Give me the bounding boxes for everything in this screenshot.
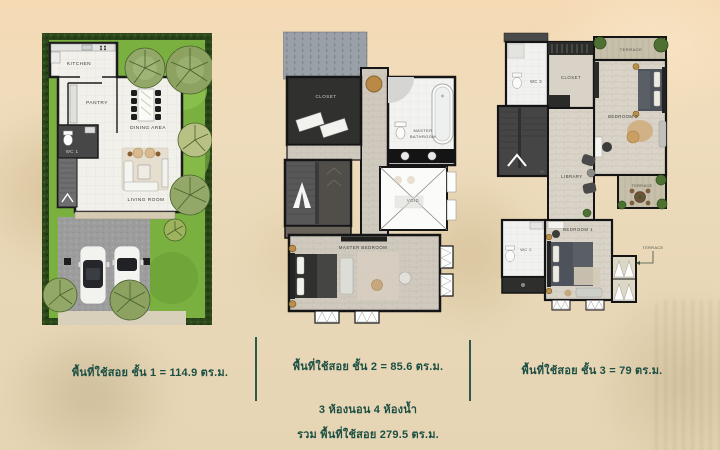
lamp-icon: [289, 301, 296, 308]
terrace-mid-label: TERRACE: [632, 184, 653, 188]
terrace-mid: TERRACE: [618, 175, 667, 209]
plant-icon: [583, 209, 591, 217]
floor3-area-caption: พื้นที่ใช้สอย ชั้น 3 = 79 ตร.ม.: [492, 361, 692, 379]
rug-icon: [574, 267, 600, 285]
desk-icon: [595, 137, 602, 157]
closet-room: CLOSET: [287, 77, 361, 145]
lamp-icon: [289, 245, 296, 252]
bed-icon: [290, 253, 337, 299]
bedroom1-label: BEDROOM 1: [563, 227, 593, 232]
bedroom2-label: BEDROOM 2: [608, 114, 638, 119]
lamp-icon: [546, 234, 552, 240]
terrace-top: TERRACE: [594, 37, 668, 60]
wc2-room: WC 2: [502, 220, 545, 293]
living-label: LIVING ROOM: [128, 197, 165, 203]
rooms-summary-caption: 3 ห้องนอน 4 ห้องน้ำ: [268, 400, 468, 418]
wc2-label: WC 2: [520, 247, 532, 252]
gate-post-icon: [143, 258, 150, 265]
bedroom2: BEDROOM 2: [594, 60, 666, 175]
toilet-icon: [506, 251, 515, 262]
floor2-area-caption: พื้นที่ใช้สอย ชั้น 2 = 85.6 ตร.ม.: [268, 357, 468, 375]
dining-label: DINING AREA: [130, 125, 166, 131]
plant-icon: [618, 201, 626, 209]
french-door-icon: [552, 300, 604, 310]
wc1-room: WC 1: [58, 125, 98, 158]
roof-ledge: [504, 33, 548, 42]
plant-icon: [657, 199, 667, 209]
patio-strip: [75, 212, 175, 219]
closet-label: CLOSET: [315, 94, 336, 99]
master-bedroom: MASTER BEDROOM: [289, 235, 440, 311]
plant-icon: [656, 175, 666, 185]
wc3-label: WC 3: [530, 79, 542, 84]
armchair-icon: [399, 272, 411, 284]
pantry-label: PANTRY: [86, 100, 108, 106]
pouf-icon: [565, 290, 572, 297]
divider-line-left: [255, 337, 257, 401]
gate-post-icon: [64, 258, 71, 265]
sink-icon: [530, 222, 543, 229]
balcony-terrace: [612, 256, 636, 302]
stairs-icon: [498, 106, 548, 176]
chair-icon: [552, 230, 560, 238]
brochure-page: KITCHEN PANTRY WC 1 DINING AREA: [0, 0, 720, 450]
library-label: LIBRARY: [561, 174, 582, 179]
window-shutters-icon: [447, 172, 456, 220]
floor-plan-2: CLOSET MASTER BATHROOM: [283, 30, 462, 332]
kitchen-label: KITCHEN: [67, 61, 91, 67]
master-bathroom-label: MASTER: [413, 128, 432, 133]
toilet-icon: [395, 122, 406, 139]
stairs-icon: [58, 158, 77, 207]
car-icon: [79, 246, 110, 304]
sofa-icon: [659, 121, 666, 147]
terrace-balcony-callout: TERRACE: [636, 246, 664, 265]
divider-line-right: [469, 340, 471, 401]
void-area: VOID: [380, 167, 447, 230]
wc3-room: WC 3: [506, 42, 548, 106]
rug-icon: [357, 252, 399, 300]
round-rug-icon: [366, 76, 382, 92]
pantry-shelf-icon: [70, 85, 77, 123]
terrace-top-label: TERRACE: [620, 47, 643, 52]
master-bathroom-label: BATHROOM: [410, 134, 436, 139]
master-bathroom: MASTER BATHROOM: [388, 77, 455, 165]
lamp-icon: [546, 288, 552, 294]
bedroom1: BEDROOM 1: [545, 220, 612, 300]
void-label: VOID: [407, 198, 420, 203]
roof-section: [283, 32, 367, 79]
floor1-area-caption: พื้นที่ใช้สอย ชั้น 1 = 114.9 ตร.ม.: [40, 363, 260, 381]
plant-icon: [594, 37, 606, 49]
sofa-icon: [340, 258, 353, 294]
bed-icon: [638, 67, 666, 113]
plant-icon: [654, 38, 668, 52]
closet-room: CLOSET: [548, 42, 594, 108]
stair-in-label: IN: [540, 170, 544, 174]
toilet-icon: [513, 78, 522, 89]
master-bedroom-label: MASTER BEDROOM: [339, 245, 388, 250]
stairs-icon: [285, 160, 351, 226]
terrace-balcony-label: TERRACE: [643, 246, 664, 250]
living-room-set-icon: [122, 148, 168, 191]
library: LIBRARY: [548, 108, 597, 220]
toilet-icon: [64, 135, 73, 146]
chair-icon: [602, 142, 612, 152]
closet-label: CLOSET: [561, 75, 581, 80]
desk-icon: [548, 222, 564, 229]
tv-console-icon: [341, 237, 387, 242]
floor-plan-3: WC 3 CLOSET TERRACE: [490, 25, 670, 321]
side-table-icon: [587, 169, 595, 177]
shower-icon: [508, 44, 524, 58]
pouf-icon: [372, 280, 383, 291]
sofa-icon: [576, 288, 602, 297]
floor-plan-1: KITCHEN PANTRY WC 1 DINING AREA: [42, 33, 212, 325]
watercolor-blob: [0, 320, 180, 450]
total-area-caption: รวม พื้นที่ใช้สอย 279.5 ตร.ม.: [268, 425, 468, 443]
hallway: [287, 145, 361, 160]
vanity-icon: [388, 149, 455, 163]
sink-icon: [85, 127, 95, 133]
lamp-icon: [633, 64, 639, 70]
armchair-icon: [627, 131, 639, 143]
wc1-label: WC 1: [66, 149, 79, 154]
